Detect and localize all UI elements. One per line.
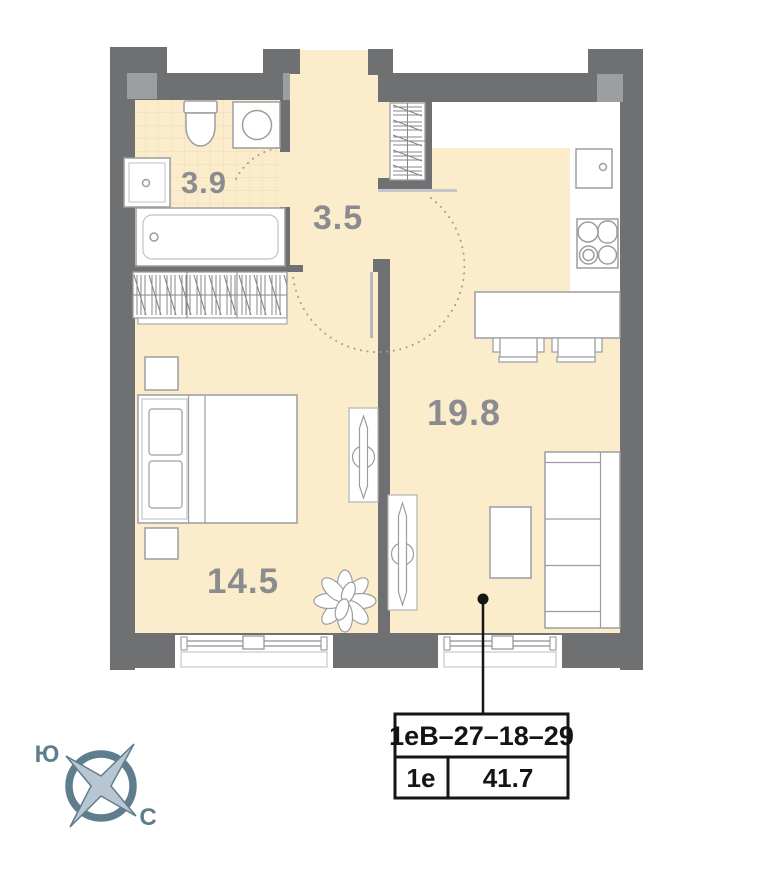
room-area-label-living-kitchen: 19.8 [427,392,501,433]
door-track-line [370,272,373,338]
wall-inset-top-left [127,73,157,99]
plant [314,570,376,632]
floor-plan: 3.9 3.5 19.8 14.5 1еВ–27–18–29 1е 41.7 Ю… [0,0,760,891]
kitchen-sink [576,149,612,188]
wall-pillar-right-of-entry [368,49,393,75]
sliding-door-living [388,495,417,610]
leader-dot [478,594,489,605]
toilet [184,101,217,146]
entry-wardrobe [390,103,425,180]
bar-stool [493,338,544,362]
bedroom-wardrobe [133,272,287,324]
bar-counter [475,292,620,338]
window-bedroom [175,635,333,672]
window-sill [181,652,327,667]
floor-plan-page: 3.9 3.5 19.8 14.5 1еВ–27–18–29 1е 41.7 Ю… [0,0,760,891]
wall-top-band-kitchen [378,73,623,102]
window-sill [444,652,556,667]
sliding-door-bedroom [349,408,378,502]
room-area-label-hallway: 3.5 [313,199,363,237]
wall-bathroom-right-upper [280,100,290,152]
sofa [545,452,620,628]
window-living [438,635,562,672]
washing-machine [233,102,280,148]
compass: Ю С [35,741,157,831]
compass-north-label: С [139,804,156,831]
room-area-label-bedroom: 14.5 [207,562,279,601]
unit-total-area: 41.7 [483,763,534,793]
coffee-table [490,507,531,578]
wall-pillar-left-of-entry [263,49,300,74]
bathroom-sink [124,158,170,207]
wall-left [110,47,135,670]
window-handle [243,636,264,649]
threshold-line [378,189,457,192]
bed [138,395,297,523]
wall-divider-cap [373,259,390,272]
bar-stool [552,338,602,362]
entry-niche-floor [300,50,368,76]
wall-inset-top-right [597,74,623,102]
wall-right [620,49,643,670]
unit-card: 1еВ–27–18–29 1е 41.7 [389,714,574,798]
unit-type: 1е [407,763,436,793]
nightstand [145,528,178,559]
unit-layout-code: 1еВ–27–18–29 [389,721,574,751]
kitchen-floor-top [432,102,620,148]
compass-south-label: Ю [35,741,60,768]
nightstand [145,357,178,390]
stove [577,219,618,268]
entry-niche-floor-lower [288,73,378,103]
room-area-label-bathroom: 3.9 [181,165,227,200]
window-handle [492,636,513,649]
bathtub [136,208,285,266]
wall-inset-entry [283,73,290,100]
